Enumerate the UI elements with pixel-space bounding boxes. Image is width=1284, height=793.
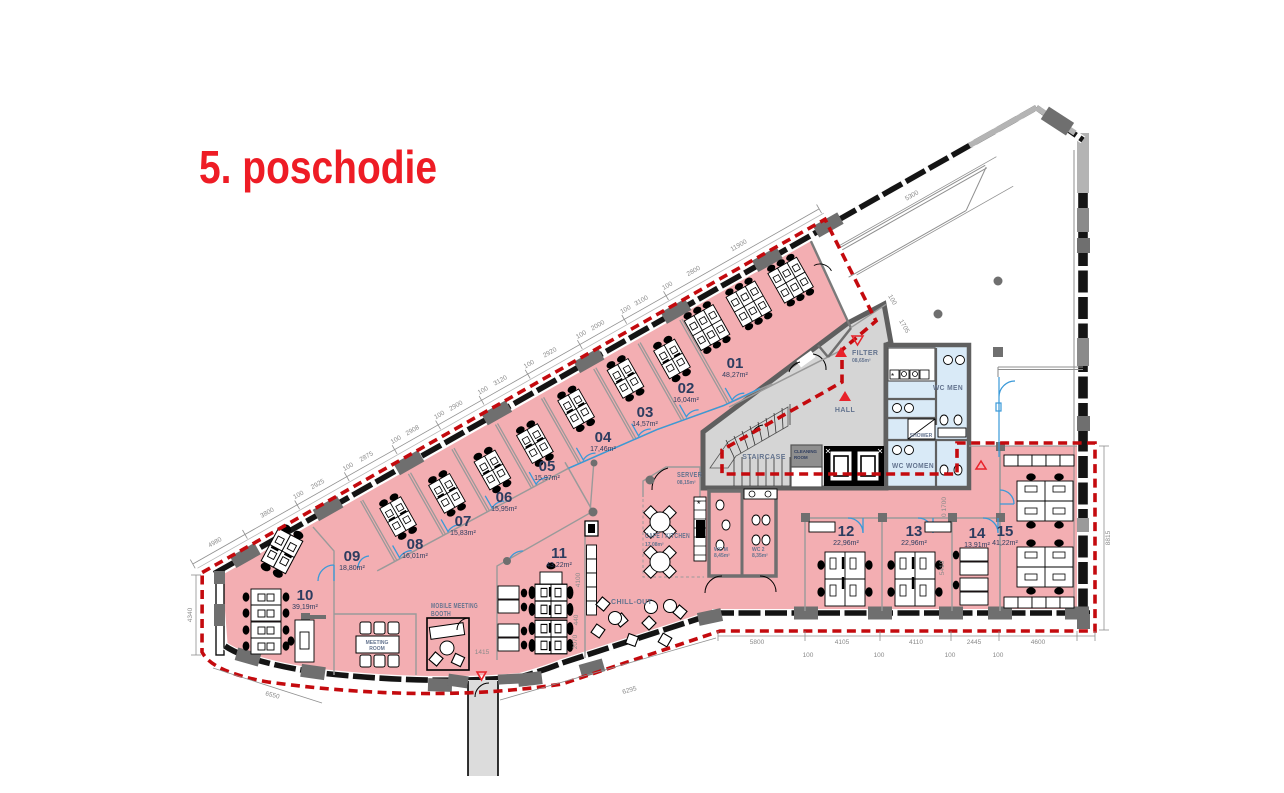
svg-text:13: 13 bbox=[906, 523, 923, 540]
svg-text:8815: 8815 bbox=[1105, 530, 1112, 545]
svg-text:*: * bbox=[697, 499, 701, 509]
svg-text:22,96m²: 22,96m² bbox=[901, 540, 927, 547]
svg-text:SHOWER: SHOWER bbox=[910, 433, 933, 439]
svg-text:100: 100 bbox=[993, 652, 1004, 659]
svg-text:100: 100 bbox=[575, 329, 588, 341]
svg-text:22,96m²: 22,96m² bbox=[833, 540, 859, 547]
svg-text:11: 11 bbox=[551, 545, 567, 562]
svg-text:100: 100 bbox=[945, 652, 956, 659]
svg-text:06: 06 bbox=[496, 489, 513, 506]
svg-text:08: 08 bbox=[407, 536, 424, 553]
svg-text:18,80m²: 18,80m² bbox=[339, 565, 365, 572]
svg-text:100: 100 bbox=[874, 652, 885, 659]
svg-text:5410: 5410 bbox=[939, 560, 946, 575]
svg-text:4100: 4100 bbox=[575, 572, 582, 587]
svg-text:2920: 2920 bbox=[542, 346, 558, 359]
svg-text:MOBILE MEETING: MOBILE MEETING bbox=[431, 603, 478, 610]
svg-text:2000: 2000 bbox=[590, 319, 606, 332]
svg-text:5300: 5300 bbox=[904, 189, 920, 202]
svg-text:16,01m²: 16,01m² bbox=[402, 553, 428, 560]
svg-text:1705: 1705 bbox=[897, 319, 910, 335]
svg-text:17,08m²: 17,08m² bbox=[645, 542, 664, 548]
svg-text:WC MEN: WC MEN bbox=[933, 385, 963, 392]
svg-text:09: 09 bbox=[344, 548, 361, 565]
svg-text:05: 05 bbox=[539, 458, 556, 475]
svg-text:2925: 2925 bbox=[310, 478, 326, 491]
svg-text:15,83m²: 15,83m² bbox=[450, 530, 476, 537]
svg-text:3120: 3120 bbox=[492, 374, 508, 387]
svg-text:3800: 3800 bbox=[259, 506, 275, 519]
svg-text:8,35m²: 8,35m² bbox=[752, 553, 768, 559]
svg-text:48,27m²: 48,27m² bbox=[722, 372, 748, 379]
svg-text:07: 07 bbox=[455, 513, 472, 530]
svg-text:03: 03 bbox=[637, 404, 654, 421]
svg-text:4105: 4105 bbox=[835, 639, 850, 646]
svg-text:13,91m²: 13,91m² bbox=[964, 542, 990, 549]
svg-text:100: 100 bbox=[433, 409, 446, 421]
svg-text:16,04m²: 16,04m² bbox=[673, 397, 699, 404]
svg-text:FILTER: FILTER bbox=[852, 350, 878, 357]
svg-text:WC WOMEN: WC WOMEN bbox=[892, 463, 934, 470]
svg-text:14,57m²: 14,57m² bbox=[632, 421, 658, 428]
svg-text:15,97m²: 15,97m² bbox=[534, 475, 560, 482]
svg-text:100: 100 bbox=[523, 359, 536, 371]
svg-text:1415: 1415 bbox=[475, 649, 490, 656]
svg-text:STAIRCASE: STAIRCASE bbox=[742, 454, 786, 461]
svg-text:5800: 5800 bbox=[750, 639, 765, 646]
svg-text:01: 01 bbox=[727, 355, 744, 372]
svg-text:4340: 4340 bbox=[187, 607, 194, 622]
svg-text:3100: 3100 bbox=[633, 294, 649, 307]
svg-text:*: * bbox=[891, 372, 894, 381]
svg-text:ROOM: ROOM bbox=[369, 646, 385, 652]
svg-text:2908: 2908 bbox=[405, 424, 421, 437]
svg-text:CAFÉ / KITCHEN: CAFÉ / KITCHEN bbox=[645, 531, 690, 540]
svg-text:6550: 6550 bbox=[264, 690, 280, 700]
svg-text:100: 100 bbox=[803, 652, 814, 659]
svg-text:41,22m²: 41,22m² bbox=[992, 540, 1018, 547]
svg-text:HALL: HALL bbox=[835, 407, 856, 414]
svg-text:100: 100 bbox=[619, 304, 632, 316]
svg-text:2800: 2800 bbox=[686, 265, 702, 278]
svg-text:14: 14 bbox=[969, 525, 986, 542]
svg-text:SERVER: SERVER bbox=[677, 472, 702, 479]
svg-text:4600: 4600 bbox=[1031, 639, 1046, 646]
svg-text:04: 04 bbox=[595, 429, 612, 446]
svg-text:6295: 6295 bbox=[622, 685, 638, 696]
svg-text:100: 100 bbox=[342, 461, 355, 473]
svg-text:15,95m²: 15,95m² bbox=[491, 506, 517, 513]
svg-text:15: 15 bbox=[997, 523, 1014, 540]
svg-text:2900: 2900 bbox=[448, 399, 464, 412]
svg-text:ROOM: ROOM bbox=[794, 455, 808, 460]
svg-text:43,22m²: 43,22m² bbox=[546, 562, 572, 569]
svg-text:100: 100 bbox=[292, 489, 305, 501]
svg-text:440: 440 bbox=[573, 614, 580, 625]
svg-text:08,65m²: 08,65m² bbox=[852, 358, 871, 364]
svg-text:4980: 4980 bbox=[207, 536, 223, 549]
svg-text:08,15m²: 08,15m² bbox=[677, 480, 696, 486]
svg-text:0 1700: 0 1700 bbox=[941, 497, 948, 517]
svg-text:100: 100 bbox=[886, 294, 898, 307]
svg-text:12: 12 bbox=[838, 523, 855, 540]
svg-text:39,19m²: 39,19m² bbox=[292, 604, 318, 611]
svg-text:02: 02 bbox=[678, 380, 695, 397]
svg-text:100: 100 bbox=[477, 385, 490, 397]
svg-text:5. poschodie: 5. poschodie bbox=[199, 141, 437, 193]
svg-text:BOOTH: BOOTH bbox=[431, 611, 451, 618]
svg-text:CLEANING: CLEANING bbox=[794, 449, 818, 454]
svg-text:10: 10 bbox=[297, 587, 314, 604]
svg-text:100: 100 bbox=[390, 434, 403, 446]
svg-text:17,46m²: 17,46m² bbox=[590, 446, 616, 453]
svg-text:CHILL-OUT: CHILL-OUT bbox=[611, 599, 653, 606]
svg-text:4110: 4110 bbox=[909, 639, 923, 646]
svg-text:100: 100 bbox=[661, 280, 674, 292]
svg-text:2875: 2875 bbox=[359, 450, 375, 463]
svg-text:2445: 2445 bbox=[967, 639, 982, 646]
svg-text:2070: 2070 bbox=[572, 634, 579, 649]
svg-text:8,45m²: 8,45m² bbox=[714, 553, 730, 559]
